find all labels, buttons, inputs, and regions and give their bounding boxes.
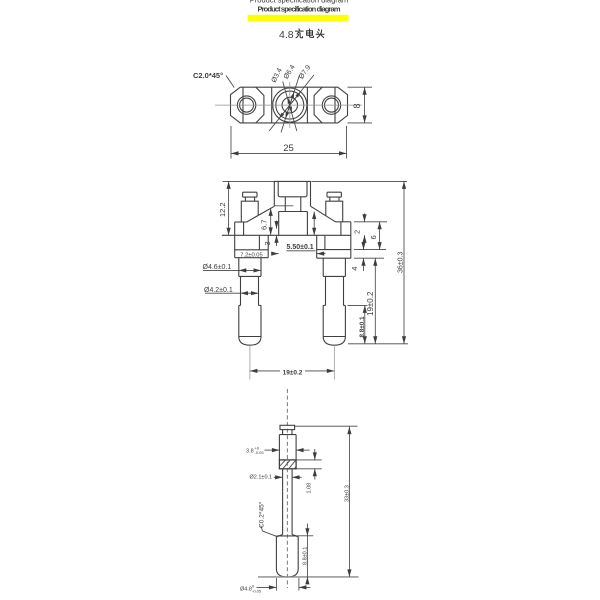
svg-text:4.8: 4.8: [279, 29, 294, 41]
svg-text:19±0.2: 19±0.2: [366, 291, 375, 316]
svg-text:6.7: 6.7: [260, 220, 269, 230]
svg-text:8: 8: [352, 103, 362, 108]
svg-text:12.2: 12.2: [218, 202, 227, 217]
svg-text:6: 6: [369, 235, 378, 239]
svg-text:Ø2.1±0.1: Ø2.1±0.1: [250, 475, 273, 481]
svg-text:-0.05: -0.05: [255, 450, 265, 455]
svg-text:3: 3: [263, 241, 272, 245]
svg-text:C0.2*45°: C0.2*45°: [258, 501, 266, 528]
svg-text:Ø4.6±0.1: Ø4.6±0.1: [203, 264, 232, 271]
svg-text:C2.0*45°: C2.0*45°: [193, 71, 223, 80]
svg-text:7.2±0.05: 7.2±0.05: [240, 252, 263, 258]
svg-text:8.8±0.1: 8.8±0.1: [303, 547, 309, 565]
svg-text:Product specification diagram: Product specification diagram: [258, 5, 341, 14]
svg-text:5.50±0.1: 5.50±0.1: [287, 244, 314, 251]
svg-text:3.8: 3.8: [246, 449, 254, 455]
svg-text:Ø4.8: Ø4.8: [240, 587, 252, 593]
svg-text:4: 4: [350, 267, 359, 271]
svg-text:8.8±0.1: 8.8±0.1: [359, 316, 366, 337]
svg-text:33±0.3: 33±0.3: [344, 485, 350, 502]
svg-text:1.08: 1.08: [307, 483, 313, 494]
svg-text:2: 2: [353, 230, 362, 234]
svg-text:-0.05: -0.05: [252, 589, 262, 594]
svg-text:25: 25: [283, 143, 294, 154]
svg-text:36±0.3: 36±0.3: [397, 252, 404, 273]
svg-text:19±0.2: 19±0.2: [283, 370, 303, 377]
